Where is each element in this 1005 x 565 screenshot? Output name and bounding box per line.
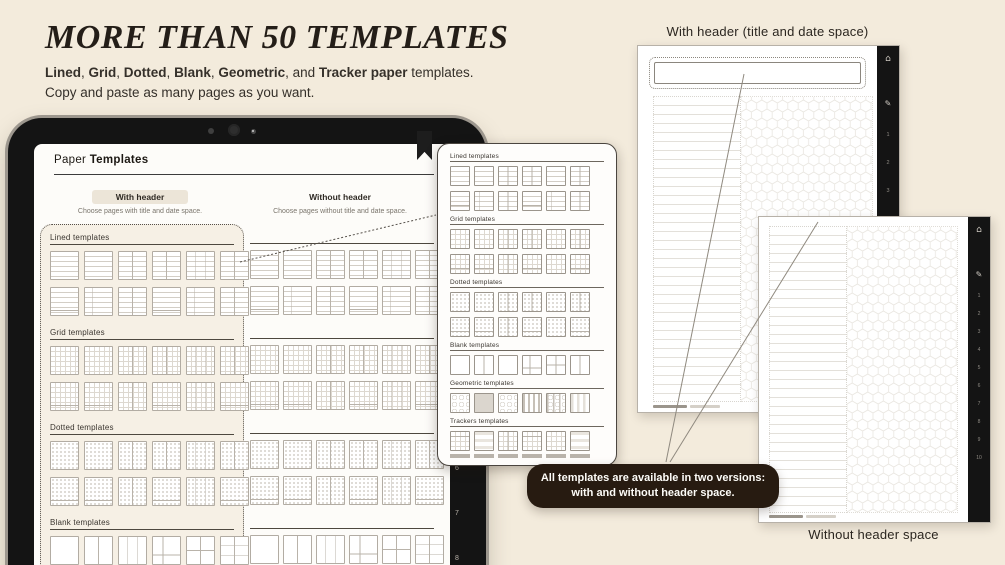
section-title: Blank templates	[50, 518, 234, 527]
template-thumbnail[interactable]	[316, 476, 345, 505]
template-thumbnail[interactable]	[450, 317, 470, 337]
template-thumbnail[interactable]	[118, 477, 147, 506]
with-header-template-panel: Lined templatesGrid templatesDotted temp…	[40, 224, 244, 565]
page-body	[769, 226, 958, 513]
page-tab[interactable]: 8	[978, 419, 981, 425]
section-divider	[50, 244, 234, 245]
template-thumbnail[interactable]	[450, 229, 470, 249]
template-thumbnail[interactable]	[498, 317, 518, 337]
template-thumbnail[interactable]	[118, 346, 147, 375]
template-thumbnail[interactable]	[250, 476, 279, 505]
template-thumbnail[interactable]	[522, 393, 542, 413]
section-title: Dotted templates	[450, 279, 604, 286]
template-thumbnail[interactable]	[498, 355, 518, 375]
without-header-page-preview: ⌂ ✎ 12345678910	[758, 216, 991, 523]
template-section: Geometric templates	[450, 380, 604, 413]
hexagon-column	[847, 226, 958, 513]
thumbnail-row	[250, 535, 434, 564]
section-divider	[250, 338, 434, 339]
front-camera-icon	[228, 124, 240, 136]
thumbnail-row	[450, 254, 604, 274]
template-thumbnail[interactable]	[50, 287, 79, 316]
template-thumbnail[interactable]	[570, 254, 590, 274]
template-thumbnail[interactable]	[283, 440, 312, 469]
template-thumbnail[interactable]	[570, 229, 590, 249]
template-thumbnail[interactable]	[498, 191, 518, 211]
template-thumbnail[interactable]	[316, 345, 345, 374]
section-divider	[450, 224, 604, 225]
template-thumbnail[interactable]	[546, 191, 566, 211]
template-thumbnail[interactable]	[474, 254, 494, 274]
camera-sensor-icon	[251, 129, 256, 134]
section-divider	[450, 287, 604, 288]
template-thumbnail[interactable]	[152, 441, 181, 470]
thumbnail-row	[250, 476, 434, 505]
template-thumbnail[interactable]	[186, 477, 215, 506]
template-thumbnail[interactable]	[546, 317, 566, 337]
template-thumbnail[interactable]	[283, 381, 312, 410]
tooltip-line1: All templates are available in two versi…	[541, 471, 765, 486]
section-divider	[450, 426, 604, 427]
pen-icon[interactable]: ✎	[976, 271, 983, 279]
title-divider	[54, 174, 434, 175]
template-thumbnail[interactable]	[382, 381, 411, 410]
template-thumbnail[interactable]	[522, 166, 542, 186]
home-icon[interactable]: ⌂	[885, 55, 891, 64]
thumbnail-row	[50, 251, 234, 280]
screen-title-regular: Paper	[54, 154, 90, 166]
section-divider	[50, 434, 234, 435]
template-thumbnail[interactable]	[474, 393, 494, 413]
hero-subtitle-segment: Geometric	[218, 65, 285, 80]
hero-subtitle-segment: Dotted	[124, 65, 167, 80]
template-thumbnail[interactable]	[250, 381, 279, 410]
template-thumbnail[interactable]	[283, 476, 312, 505]
template-thumbnail[interactable]	[415, 535, 444, 564]
thumbnail-row	[50, 382, 234, 411]
template-thumbnail[interactable]	[546, 254, 566, 274]
template-thumbnail[interactable]	[382, 476, 411, 505]
template-thumbnail[interactable]	[382, 286, 411, 315]
template-thumbnail[interactable]	[522, 317, 542, 337]
with-header-caption: Choose pages with title and date space.	[50, 208, 230, 215]
page-tab[interactable]: 7	[978, 401, 981, 407]
thumbnail-label	[522, 454, 542, 458]
page-tab[interactable]: 1	[886, 132, 889, 138]
template-thumbnail[interactable]	[546, 355, 566, 375]
hero-subtitle-segment: Grid	[89, 65, 117, 80]
template-thumbnail[interactable]	[186, 251, 215, 280]
section-divider	[450, 161, 604, 162]
template-thumbnail[interactable]	[283, 535, 312, 564]
template-thumbnail[interactable]	[498, 229, 518, 249]
template-thumbnail[interactable]	[474, 355, 494, 375]
template-thumbnail[interactable]	[50, 382, 79, 411]
template-thumbnail[interactable]	[84, 287, 113, 316]
tooltip-line2: with and without header space.	[571, 486, 734, 501]
template-thumbnail[interactable]	[220, 536, 249, 565]
template-thumbnail[interactable]	[546, 292, 566, 312]
template-thumbnail[interactable]	[450, 393, 470, 413]
template-thumbnail[interactable]	[316, 250, 345, 279]
page-tab[interactable]: 3	[978, 329, 981, 335]
without-header-preview-label: Without header space	[758, 527, 989, 542]
template-thumbnail[interactable]	[570, 431, 590, 451]
page-credit-text	[769, 515, 836, 518]
template-section: Grid templates	[450, 216, 604, 274]
template-thumbnail[interactable]	[186, 287, 215, 316]
template-thumbnail[interactable]	[349, 381, 378, 410]
template-thumbnail[interactable]	[415, 476, 444, 505]
template-thumbnail[interactable]	[450, 431, 470, 451]
template-thumbnail[interactable]	[522, 355, 542, 375]
section-title: Grid templates	[450, 216, 604, 223]
callout-tooltip: All templates are available in two versi…	[527, 464, 779, 508]
lined-column	[653, 96, 741, 402]
page-sidebar: ⌂ ✎ 12345678910	[968, 217, 990, 522]
template-thumbnail[interactable]	[283, 286, 312, 315]
page-credit-text	[653, 405, 720, 408]
template-thumbnail[interactable]	[570, 166, 590, 186]
template-thumbnail[interactable]	[316, 535, 345, 564]
template-thumbnail[interactable]	[522, 191, 542, 211]
template-thumbnail[interactable]	[152, 251, 181, 280]
hero-subtitle-segment: , and	[285, 65, 319, 80]
template-thumbnail[interactable]	[250, 345, 279, 374]
section-divider	[250, 243, 434, 244]
template-thumbnail[interactable]	[349, 250, 378, 279]
template-thumbnail[interactable]	[570, 355, 590, 375]
template-thumbnail[interactable]	[250, 535, 279, 564]
thumbnail-row	[450, 292, 604, 312]
pen-icon[interactable]: ✎	[885, 100, 892, 108]
template-thumbnail[interactable]	[522, 229, 542, 249]
template-thumbnail[interactable]	[450, 254, 470, 274]
template-section: Blank templates	[450, 342, 604, 375]
page-header-space	[649, 57, 866, 89]
section-title: Lined templates	[450, 153, 604, 160]
hero-subtitle-segment: Lined	[45, 65, 81, 80]
section-divider	[250, 528, 434, 529]
template-thumbnail[interactable]	[349, 440, 378, 469]
section-title: Dotted templates	[50, 423, 234, 432]
thumbnail-label-row	[450, 454, 604, 458]
section-title: Trackers templates	[450, 418, 604, 425]
section-title: Lined templates	[50, 233, 234, 242]
page-title: MORE THAN 50 TEMPLATES	[45, 20, 605, 56]
section-title: Geometric templates	[450, 380, 604, 387]
page-tab[interactable]: 2	[886, 160, 889, 166]
template-thumbnail[interactable]	[152, 477, 181, 506]
template-thumbnail[interactable]	[474, 191, 494, 211]
thumbnail-row	[450, 393, 604, 413]
template-thumbnail[interactable]	[546, 166, 566, 186]
page-tab[interactable]: 1	[978, 293, 981, 299]
template-thumbnail[interactable]	[474, 317, 494, 337]
hero-subtitle-segment: ,	[116, 65, 124, 80]
template-thumbnail[interactable]	[220, 287, 249, 316]
template-thumbnail[interactable]	[546, 229, 566, 249]
without-header-caption: Choose pages without title and date spac…	[250, 208, 430, 215]
template-thumbnail[interactable]	[250, 286, 279, 315]
section-divider	[50, 339, 234, 340]
template-thumbnail[interactable]	[316, 440, 345, 469]
template-thumbnail[interactable]	[349, 535, 378, 564]
template-section: Blank templates	[250, 517, 434, 564]
hero-block: MORE THAN 50 TEMPLATES Lined, Grid, Dott…	[45, 20, 605, 103]
hero-subtitle-line2: Copy and paste as many pages as you want…	[45, 85, 314, 100]
thumbnail-label	[474, 454, 494, 458]
page-tab[interactable]: 7	[455, 510, 459, 518]
template-thumbnail[interactable]	[382, 345, 411, 374]
template-thumbnail[interactable]	[84, 441, 113, 470]
hero-subtitle-segment: Tracker paper	[319, 65, 408, 80]
template-thumbnail[interactable]	[186, 441, 215, 470]
template-thumbnail[interactable]	[84, 251, 113, 280]
promo-graphic: MORE THAN 50 TEMPLATES Lined, Grid, Dott…	[0, 0, 1005, 565]
template-thumbnail[interactable]	[474, 229, 494, 249]
template-thumbnail[interactable]	[118, 536, 147, 565]
template-thumbnail[interactable]	[382, 440, 411, 469]
template-thumbnail[interactable]	[152, 536, 181, 565]
template-thumbnail[interactable]	[349, 286, 378, 315]
template-thumbnail[interactable]	[474, 292, 494, 312]
template-thumbnail[interactable]	[186, 346, 215, 375]
thumbnail-row	[50, 287, 234, 316]
template-thumbnail[interactable]	[283, 250, 312, 279]
template-section: Blank templates	[50, 518, 234, 565]
page-number-tabs: 12345678910	[976, 293, 982, 473]
template-section: Grid templates	[50, 328, 234, 411]
template-thumbnail[interactable]	[220, 477, 249, 506]
template-thumbnail[interactable]	[152, 382, 181, 411]
template-thumbnail[interactable]	[283, 345, 312, 374]
template-thumbnail[interactable]	[186, 382, 215, 411]
template-thumbnail[interactable]	[450, 355, 470, 375]
template-thumbnail[interactable]	[498, 254, 518, 274]
template-thumbnail[interactable]	[84, 477, 113, 506]
tab-with-header[interactable]: With header	[92, 190, 188, 204]
template-thumbnail[interactable]	[349, 476, 378, 505]
thumbnail-row	[450, 229, 604, 249]
hero-subtitle: Lined, Grid, Dotted, Blank, Geometric, a…	[45, 65, 474, 80]
page-tab[interactable]: 9	[978, 437, 981, 443]
template-thumbnail[interactable]	[84, 346, 113, 375]
template-thumbnail[interactable]	[50, 441, 79, 470]
template-section: Trackers templates	[450, 418, 604, 458]
template-thumbnail[interactable]	[522, 254, 542, 274]
hexagon-pattern	[847, 227, 957, 512]
template-thumbnail[interactable]	[220, 441, 249, 470]
template-thumbnail[interactable]	[50, 477, 79, 506]
thumbnail-label	[570, 454, 590, 458]
thumbnail-row	[450, 317, 604, 337]
home-icon[interactable]: ⌂	[976, 226, 982, 235]
page-tab[interactable]: 8	[455, 555, 459, 563]
hero-subtitle-segment: ,	[167, 65, 175, 80]
thumbnail-label	[498, 454, 518, 458]
hero-subtitle-wrap: Lined, Grid, Dotted, Blank, Geometric, a…	[45, 63, 605, 104]
template-thumbnail[interactable]	[220, 382, 249, 411]
template-thumbnail[interactable]	[118, 251, 147, 280]
thumbnail-row	[250, 440, 434, 469]
template-thumbnail[interactable]	[474, 431, 494, 451]
template-thumbnail[interactable]	[498, 431, 518, 451]
template-thumbnail[interactable]	[570, 292, 590, 312]
template-thumbnail[interactable]	[546, 393, 566, 413]
template-section: Dotted templates	[250, 422, 434, 505]
template-thumbnail[interactable]	[570, 191, 590, 211]
template-thumbnail[interactable]	[152, 287, 181, 316]
thumbnail-row	[50, 346, 234, 375]
page-tab[interactable]: 3	[886, 188, 889, 194]
section-divider	[250, 433, 434, 434]
template-section: Lined templates	[50, 233, 234, 316]
with-header-preview-label: With header (title and date space)	[637, 24, 898, 39]
section-divider	[450, 350, 604, 351]
screen-title-bold: Templates	[90, 154, 149, 166]
thumbnail-row	[450, 191, 604, 211]
lined-column	[769, 226, 847, 513]
template-thumbnail[interactable]	[118, 382, 147, 411]
section-title: Grid templates	[50, 328, 234, 337]
section-title: Blank templates	[450, 342, 604, 349]
thumbnail-row	[250, 381, 434, 410]
template-thumbnail[interactable]	[186, 536, 215, 565]
thumbnail-label	[546, 454, 566, 458]
template-section: Dotted templates	[450, 279, 604, 337]
hero-subtitle-segment: ,	[81, 65, 89, 80]
template-thumbnail[interactable]	[349, 345, 378, 374]
template-thumbnail[interactable]	[498, 292, 518, 312]
template-thumbnail[interactable]	[118, 441, 147, 470]
template-thumbnail[interactable]	[522, 292, 542, 312]
thumbnail-row	[450, 166, 604, 186]
section-divider	[450, 388, 604, 389]
page-tab[interactable]: 4	[978, 347, 981, 353]
template-thumbnail[interactable]	[546, 431, 566, 451]
template-thumbnail[interactable]	[220, 346, 249, 375]
without-header-template-panel: Lined templatesGrid templatesDotted temp…	[250, 224, 434, 565]
template-thumbnail[interactable]	[316, 286, 345, 315]
template-thumbnail[interactable]	[570, 317, 590, 337]
template-thumbnail[interactable]	[450, 191, 470, 211]
camera-dot-icon	[208, 128, 214, 134]
thumbnail-row	[450, 355, 604, 375]
template-thumbnail[interactable]	[450, 292, 470, 312]
screen-title: Paper Templates	[54, 154, 148, 166]
template-thumbnail[interactable]	[474, 166, 494, 186]
template-thumbnail[interactable]	[382, 535, 411, 564]
template-thumbnail[interactable]	[382, 250, 411, 279]
thumbnail-row	[250, 250, 434, 279]
template-thumbnail[interactable]	[220, 251, 249, 280]
template-thumbnail[interactable]	[84, 382, 113, 411]
template-section: Lined templates	[250, 232, 434, 315]
section-divider	[50, 529, 234, 530]
title-date-field[interactable]	[654, 62, 861, 84]
thumbnail-row	[50, 477, 234, 506]
thumbnail-row	[50, 536, 234, 565]
template-thumbnail[interactable]	[498, 393, 518, 413]
template-thumbnail[interactable]	[50, 536, 79, 565]
templates-popup-card: Lined templatesGrid templatesDotted temp…	[437, 143, 617, 466]
template-section: Grid templates	[250, 327, 434, 410]
template-thumbnail[interactable]	[152, 346, 181, 375]
template-thumbnail[interactable]	[250, 440, 279, 469]
page-tab[interactable]: 2	[978, 311, 981, 317]
template-thumbnail[interactable]	[50, 346, 79, 375]
tablet-screen: Paper Templates With header Without head…	[34, 144, 450, 565]
thumbnail-label	[450, 454, 470, 458]
template-thumbnail[interactable]	[50, 251, 79, 280]
template-thumbnail[interactable]	[522, 431, 542, 451]
hero-subtitle-segment: Blank	[174, 65, 211, 80]
template-thumbnail[interactable]	[118, 287, 147, 316]
page-tab[interactable]: 5	[978, 365, 981, 371]
template-thumbnail[interactable]	[570, 393, 590, 413]
template-section: Lined templates	[450, 153, 604, 211]
thumbnail-row	[450, 431, 604, 451]
thumbnail-row	[250, 286, 434, 315]
template-thumbnail[interactable]	[498, 166, 518, 186]
thumbnail-row	[50, 441, 234, 470]
tab-without-header[interactable]: Without header	[292, 190, 388, 204]
thumbnail-row	[250, 345, 434, 374]
hero-subtitle-segment: templates.	[407, 65, 473, 80]
template-thumbnail[interactable]	[316, 381, 345, 410]
page-tab[interactable]: 10	[976, 455, 982, 461]
page-tab[interactable]: 6	[455, 465, 459, 473]
page-tab[interactable]: 6	[978, 383, 981, 389]
template-thumbnail[interactable]	[84, 536, 113, 565]
template-thumbnail[interactable]	[450, 166, 470, 186]
template-section: Dotted templates	[50, 423, 234, 506]
template-thumbnail[interactable]	[250, 250, 279, 279]
